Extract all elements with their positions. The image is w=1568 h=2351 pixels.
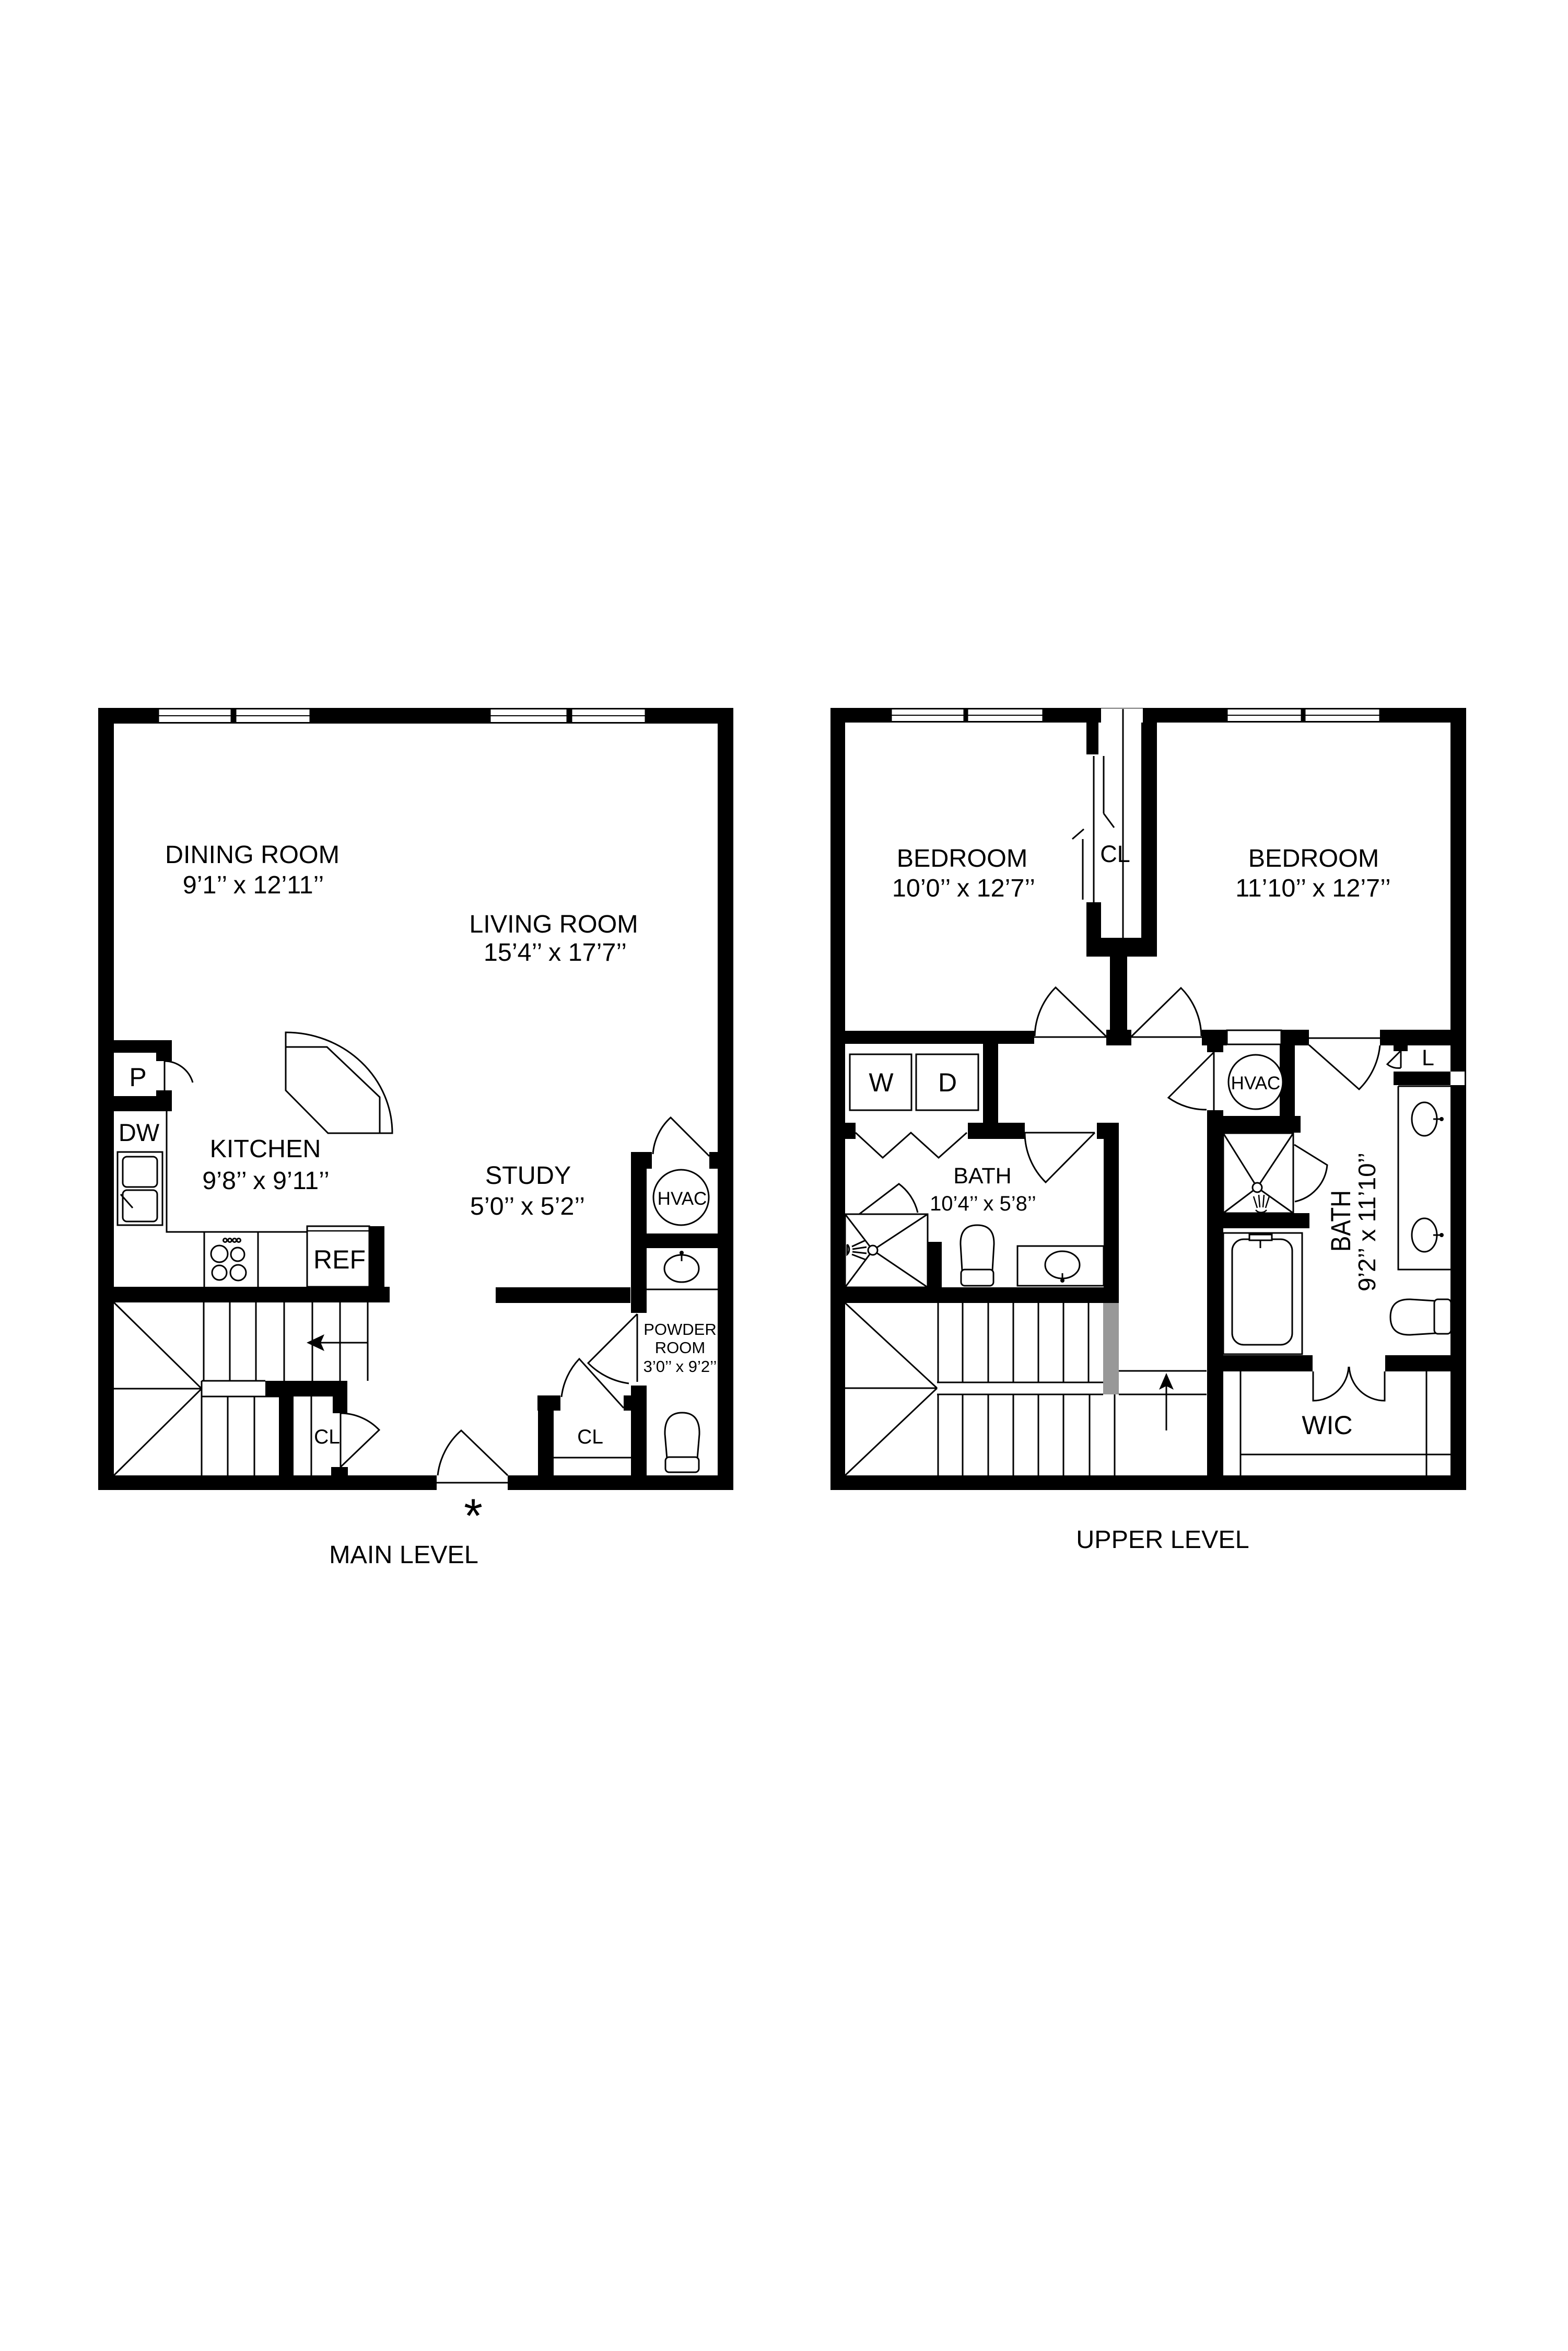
svg-text:DW: DW	[119, 1119, 160, 1146]
svg-text:KITCHEN: KITCHEN	[210, 1135, 321, 1163]
svg-text:5’0’’ x 5’2’’: 5’0’’ x 5’2’’	[470, 1192, 585, 1220]
svg-text:CL: CL	[314, 1426, 340, 1448]
svg-text:STUDY: STUDY	[485, 1161, 571, 1190]
svg-text:WIC: WIC	[1302, 1411, 1352, 1440]
svg-text:W: W	[869, 1068, 894, 1097]
svg-text:POWDER: POWDER	[643, 1320, 717, 1339]
svg-text:BATH: BATH	[1326, 1190, 1356, 1252]
svg-text:HVAC: HVAC	[658, 1189, 707, 1209]
svg-text:BEDROOM: BEDROOM	[1248, 844, 1379, 872]
svg-text:9’8’’ x 9’11’’: 9’8’’ x 9’11’’	[202, 1167, 330, 1195]
svg-text:UPPER LEVEL: UPPER LEVEL	[1076, 1526, 1249, 1554]
svg-text:10’0’’ x 12’7’’: 10’0’’ x 12’7’’	[892, 874, 1035, 902]
svg-text:11’10’’ x 12’7’’: 11’10’’ x 12’7’’	[1235, 874, 1391, 902]
svg-text:3’0’’ x 9’2’’: 3’0’’ x 9’2’’	[643, 1357, 717, 1376]
svg-text:9’1’’ x 12’11’’: 9’1’’ x 12’11’’	[183, 871, 324, 899]
svg-text:CL: CL	[1100, 841, 1130, 867]
svg-text:CL: CL	[577, 1426, 603, 1448]
svg-text:REF: REF	[313, 1245, 366, 1274]
svg-text:DINING ROOM: DINING ROOM	[165, 841, 340, 869]
svg-text:*: *	[464, 1489, 483, 1543]
svg-text:9’2’’ x 11’10’’: 9’2’’ x 11’10’’	[1353, 1153, 1380, 1291]
svg-text:D: D	[938, 1068, 957, 1097]
svg-text:L: L	[1422, 1045, 1434, 1070]
svg-text:ROOM: ROOM	[655, 1339, 705, 1357]
svg-text:10’4’’ x 5’8’’: 10’4’’ x 5’8’’	[930, 1192, 1036, 1215]
svg-text:15’4’’ x 17’7’’: 15’4’’ x 17’7’’	[484, 938, 627, 967]
svg-text:BATH: BATH	[953, 1163, 1012, 1189]
svg-text:MAIN LEVEL: MAIN LEVEL	[329, 1541, 478, 1569]
svg-text:HVAC: HVAC	[1231, 1073, 1281, 1093]
svg-text:P: P	[129, 1063, 146, 1092]
svg-text:LIVING ROOM: LIVING ROOM	[469, 910, 638, 938]
svg-text:BEDROOM: BEDROOM	[897, 844, 1028, 872]
